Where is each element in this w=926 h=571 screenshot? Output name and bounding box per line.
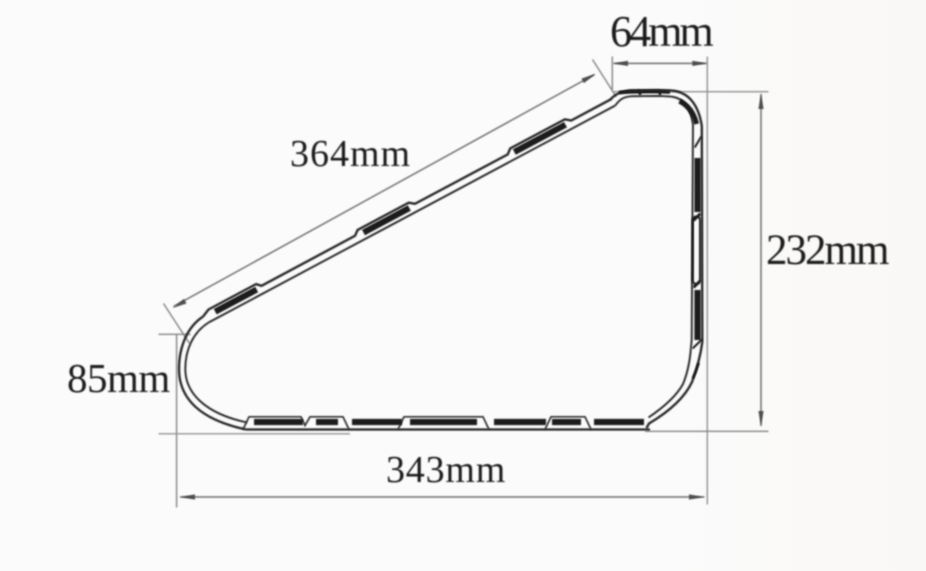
svg-text:364mm: 364mm: [290, 133, 411, 175]
svg-text:64mm: 64mm: [610, 7, 714, 56]
svg-text:85mm: 85mm: [67, 355, 170, 401]
svg-text:343mm: 343mm: [386, 449, 506, 491]
svg-text:232mm: 232mm: [766, 227, 889, 274]
